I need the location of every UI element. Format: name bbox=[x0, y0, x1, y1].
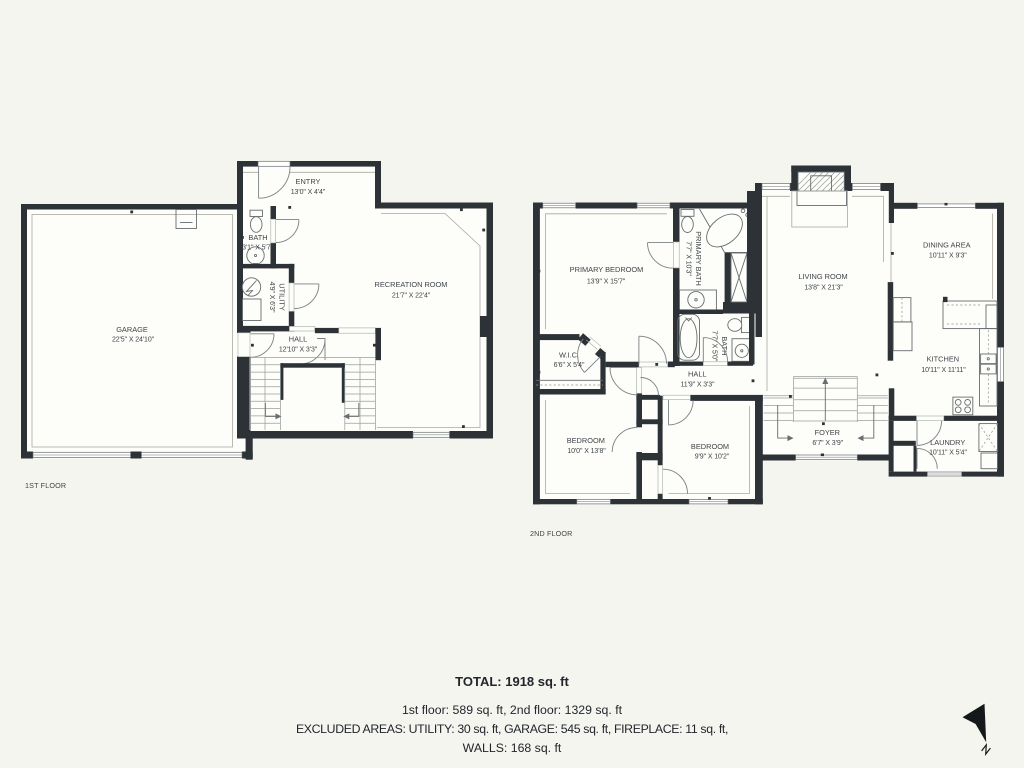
svg-text:PRIMARY BEDROOM: PRIMARY BEDROOM bbox=[570, 265, 644, 274]
svg-text:ENTRY: ENTRY bbox=[296, 177, 321, 186]
svg-text:6'7" X 3'9": 6'7" X 3'9" bbox=[812, 440, 843, 447]
svg-text:13'8" X 21'3": 13'8" X 21'3" bbox=[804, 285, 843, 292]
svg-text:10'11" X 5'4": 10'11" X 5'4" bbox=[929, 450, 967, 457]
svg-text:RECREATION ROOM: RECREATION ROOM bbox=[375, 280, 448, 289]
svg-text:KITCHEN: KITCHEN bbox=[927, 355, 959, 364]
svg-text:BATH: BATH bbox=[248, 233, 267, 242]
svg-text:13'9" X 15'7": 13'9" X 15'7" bbox=[587, 279, 626, 286]
svg-text:3'1" X 5'7": 3'1" X 5'7" bbox=[242, 245, 273, 252]
svg-text:1ST FLOOR: 1ST FLOOR bbox=[25, 481, 66, 490]
svg-text:HALL: HALL bbox=[688, 370, 707, 379]
svg-text:12'10" X 3'3": 12'10" X 3'3" bbox=[279, 347, 318, 354]
svg-text:EXCLUDED AREAS: UTILITY: 30 sq: EXCLUDED AREAS: UTILITY: 30 sq. ft, GARA… bbox=[296, 722, 728, 736]
svg-text:21'7" X 22'4": 21'7" X 22'4" bbox=[392, 293, 431, 300]
svg-text:FOYER: FOYER bbox=[815, 428, 840, 437]
svg-text:10'0" X 13'8": 10'0" X 13'8" bbox=[567, 448, 606, 455]
svg-text:GARAGE: GARAGE bbox=[116, 325, 148, 334]
svg-text:2ND FLOOR: 2ND FLOOR bbox=[530, 529, 573, 538]
svg-text:22'5" X 24'10": 22'5" X 24'10" bbox=[112, 337, 155, 344]
svg-text:6'6" X 5'4": 6'6" X 5'4" bbox=[554, 362, 585, 369]
svg-text:10'11" X 11'11": 10'11" X 11'11" bbox=[921, 367, 966, 374]
svg-text:TOTAL: 1918 sq. ft: TOTAL: 1918 sq. ft bbox=[455, 674, 569, 689]
svg-text:1st floor: 589 sq. ft, 2nd flo: 1st floor: 589 sq. ft, 2nd floor: 1329 s… bbox=[402, 703, 623, 717]
svg-text:11'9" X 3'3": 11'9" X 3'3" bbox=[681, 382, 716, 389]
svg-text:9'9" X 10'2": 9'9" X 10'2" bbox=[695, 454, 730, 461]
svg-text:W.I.C.: W.I.C. bbox=[559, 351, 579, 360]
svg-text:13'0" X 4'4": 13'0" X 4'4" bbox=[291, 189, 326, 196]
svg-text:BEDROOM: BEDROOM bbox=[567, 436, 605, 445]
svg-text:LAUNDRY: LAUNDRY bbox=[930, 438, 965, 447]
svg-text:LIVING ROOM: LIVING ROOM bbox=[798, 272, 847, 281]
svg-text:HALL: HALL bbox=[289, 335, 308, 344]
svg-text:WALLS: 168 sq. ft: WALLS: 168 sq. ft bbox=[463, 741, 562, 755]
svg-text:10'11" X 9'3": 10'11" X 9'3" bbox=[929, 253, 967, 260]
svg-text:BEDROOM: BEDROOM bbox=[691, 442, 729, 451]
svg-text:DINING AREA: DINING AREA bbox=[923, 241, 971, 250]
